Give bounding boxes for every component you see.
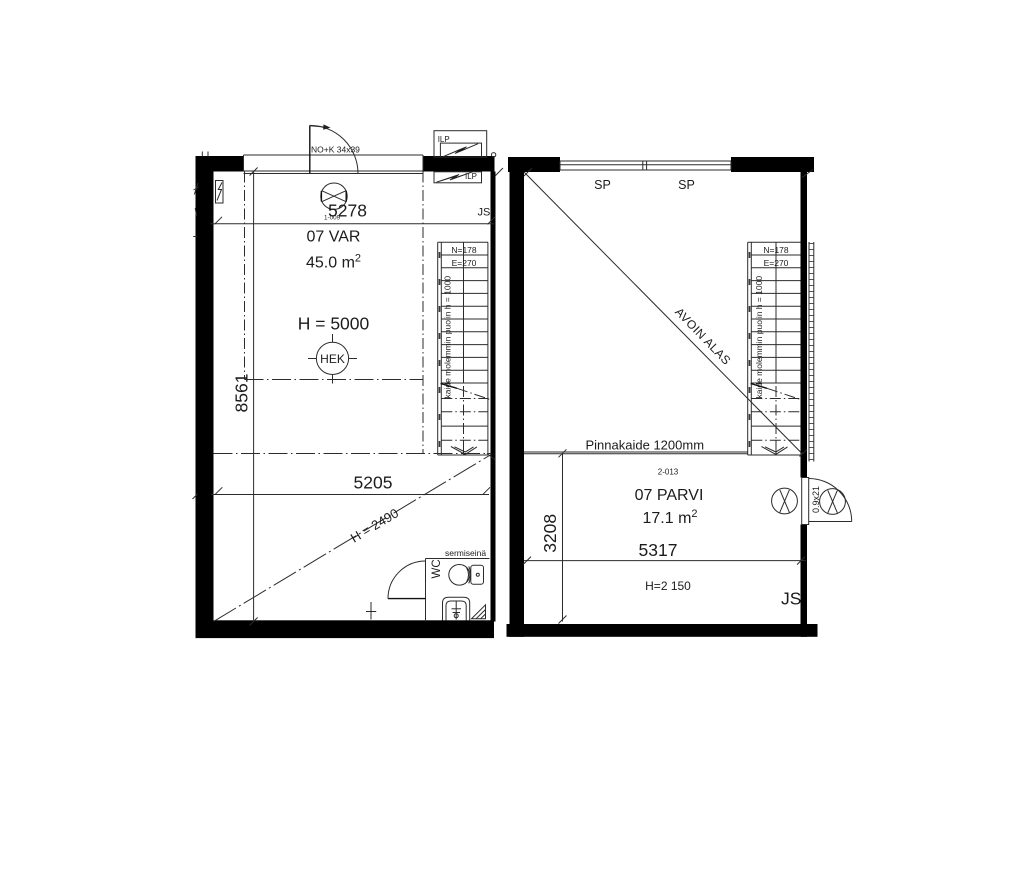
svg-text:SP: SP	[594, 178, 611, 192]
svg-text:5205: 5205	[354, 473, 393, 493]
svg-text:2-013: 2-013	[658, 468, 679, 477]
svg-text:5278: 5278	[328, 201, 367, 221]
svg-text:H=2 150: H=2 150	[645, 579, 691, 593]
svg-text:N=178: N=178	[451, 245, 477, 255]
svg-text:5317: 5317	[639, 540, 678, 560]
svg-text:SP: SP	[678, 178, 695, 192]
svg-text:HEK: HEK	[320, 352, 345, 366]
svg-text:kaide molemmin puolin h = 1000: kaide molemmin puolin h = 1000	[754, 276, 764, 399]
svg-text:sermiseinä: sermiseinä	[445, 548, 486, 558]
svg-text:E=270: E=270	[452, 258, 477, 268]
svg-text:ILP: ILP	[465, 172, 477, 181]
svg-text:E=270: E=270	[764, 258, 789, 268]
svg-text:3208: 3208	[540, 514, 560, 553]
svg-text:kaide molemmin puolin h = 1000: kaide molemmin puolin h = 1000	[443, 276, 453, 399]
svg-text:45.0 m2: 45.0 m2	[306, 253, 361, 272]
svg-text:H = 5000: H = 5000	[298, 314, 370, 334]
svg-text:ILP: ILP	[438, 135, 450, 144]
svg-text:NO+K 34x39: NO+K 34x39	[311, 145, 360, 155]
svg-text:07 VAR: 07 VAR	[307, 229, 361, 246]
svg-text:N=178: N=178	[763, 245, 789, 255]
svg-text:Pinnakaide 1200mm: Pinnakaide 1200mm	[586, 438, 705, 453]
svg-text:WC: WC	[431, 559, 443, 578]
svg-text:JS: JS	[781, 589, 801, 609]
svg-text:JS: JS	[478, 207, 491, 219]
svg-text:17.1 m2: 17.1 m2	[643, 508, 698, 527]
svg-text:07 PARVI: 07 PARVI	[635, 487, 704, 504]
